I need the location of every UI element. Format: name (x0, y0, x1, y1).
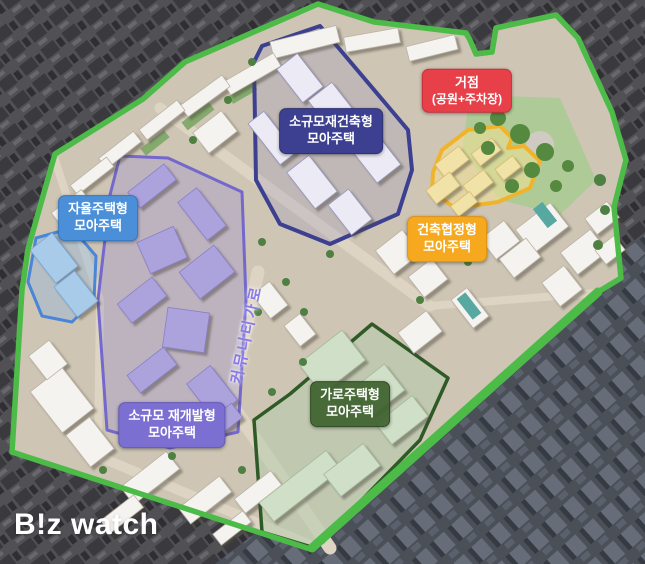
bizwatch-logo: B!z watch (14, 508, 159, 542)
zone-label-line2: (공원+주차장) (432, 92, 502, 108)
zone-label-line1: 소규모 재개발형 (128, 408, 215, 425)
zone-label-small-scale-reconstruction: 소규모재건축형 모아주택 (279, 108, 383, 154)
zone-label-line1: 가로주택형 (320, 387, 380, 404)
zone-label-line1: 건축협정형 (417, 222, 477, 239)
zone-label-line1: 거점 (432, 75, 502, 92)
zone-label-building-agreement: 건축협정형 모아주택 (407, 216, 487, 262)
zone-label-line1: 소규모재건축형 (289, 114, 373, 131)
zone-label-autonomous-housing: 자율주택형 모아주택 (58, 195, 138, 241)
zone-label-line2: 모아주택 (320, 404, 380, 421)
zone-label-line2: 모아주택 (68, 218, 128, 235)
zone-label-line2: 모아주택 (417, 239, 477, 256)
zone-label-line2: 모아주택 (128, 425, 215, 442)
zone-label-street-housing: 가로주택형 모아주택 (310, 381, 390, 427)
zone-label-line1: 자율주택형 (68, 201, 128, 218)
aerial-map-rendering (0, 0, 645, 564)
redevelopment-plan-map: 소규모재건축형 모아주택 거점 (공원+주차장) 건축협정형 모아주택 자율주택… (0, 0, 645, 564)
zone-label-small-scale-redevelopment: 소규모 재개발형 모아주택 (118, 402, 225, 448)
zone-label-line2: 모아주택 (289, 131, 373, 148)
zone-label-hub-park-parking: 거점 (공원+주차장) (422, 69, 512, 113)
